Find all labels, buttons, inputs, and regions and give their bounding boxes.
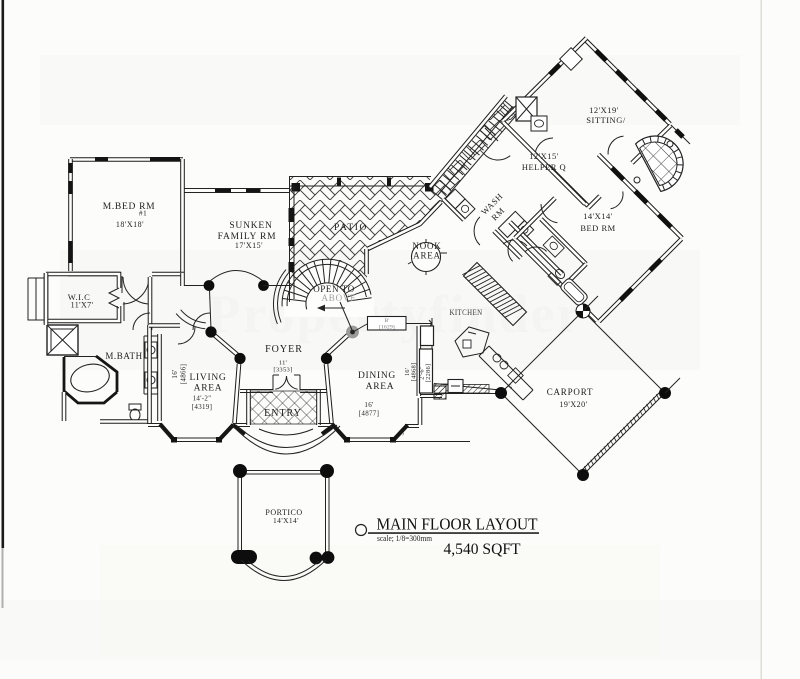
- svg-text:NOOK: NOOK: [412, 241, 441, 251]
- svg-text:ABOVE: ABOVE: [322, 293, 357, 303]
- svg-text:SUNKEN: SUNKEN: [229, 221, 272, 231]
- svg-text:14'X14': 14'X14': [273, 516, 299, 525]
- svg-text:B': B': [384, 318, 389, 324]
- svg-text:LIVING: LIVING: [190, 373, 227, 383]
- svg-text:FOYER: FOYER: [265, 344, 303, 355]
- svg-text:AREA: AREA: [413, 251, 441, 261]
- svg-text:M.BED RM: M.BED RM: [103, 202, 156, 212]
- svg-text:scale; 1/8=300mm: scale; 1/8=300mm: [377, 534, 433, 543]
- svg-text:HELPER Q: HELPER Q: [522, 162, 566, 172]
- svg-text:ENTRY: ENTRY: [264, 408, 302, 419]
- svg-text:12'X19': 12'X19': [589, 105, 619, 115]
- svg-text:#1: #1: [139, 209, 147, 218]
- svg-text:AREA: AREA: [366, 382, 395, 392]
- svg-text:[3353]: [3353]: [273, 367, 292, 374]
- svg-text:M.BATH: M.BATH: [105, 351, 142, 361]
- svg-text:18'X18': 18'X18': [116, 220, 144, 229]
- svg-text:16': 16': [364, 401, 373, 409]
- svg-text:MAIN FLOOR LAYOUT: MAIN FLOOR LAYOUT: [377, 515, 539, 534]
- svg-text:4,540 SQFT: 4,540 SQFT: [444, 541, 522, 558]
- svg-text:[4319]: [4319]: [192, 403, 212, 411]
- svg-text:[4868]: [4868]: [411, 363, 418, 382]
- svg-text:[2286]: [2286]: [425, 364, 432, 383]
- svg-text:PATIO: PATIO: [334, 223, 368, 233]
- svg-text:17'X15': 17'X15': [235, 241, 263, 250]
- svg-text:SITTING/: SITTING/: [586, 115, 626, 125]
- svg-text:12'X15': 12'X15': [529, 151, 559, 161]
- svg-text:BED RM: BED RM: [580, 223, 615, 233]
- svg-text:11': 11': [279, 360, 287, 367]
- svg-text:[4877]: [4877]: [359, 410, 379, 418]
- svg-text:KITCHEN: KITCHEN: [450, 307, 483, 317]
- svg-text:DINING: DINING: [358, 371, 396, 381]
- svg-text:11'X7': 11'X7': [71, 301, 94, 310]
- svg-text:AREA: AREA: [194, 384, 223, 394]
- svg-text:Propertyfinder: Propertyfinder: [208, 284, 583, 344]
- svg-text:16': 16': [171, 369, 179, 378]
- svg-text:CARPORT: CARPORT: [547, 387, 594, 397]
- svg-text:[4866]: [4866]: [180, 364, 188, 384]
- svg-text:[1629]: [1629]: [379, 325, 395, 331]
- svg-text:19'X20': 19'X20': [559, 400, 587, 409]
- svg-text:14'X14': 14'X14': [583, 211, 613, 221]
- svg-text:14'-2": 14'-2": [193, 395, 212, 403]
